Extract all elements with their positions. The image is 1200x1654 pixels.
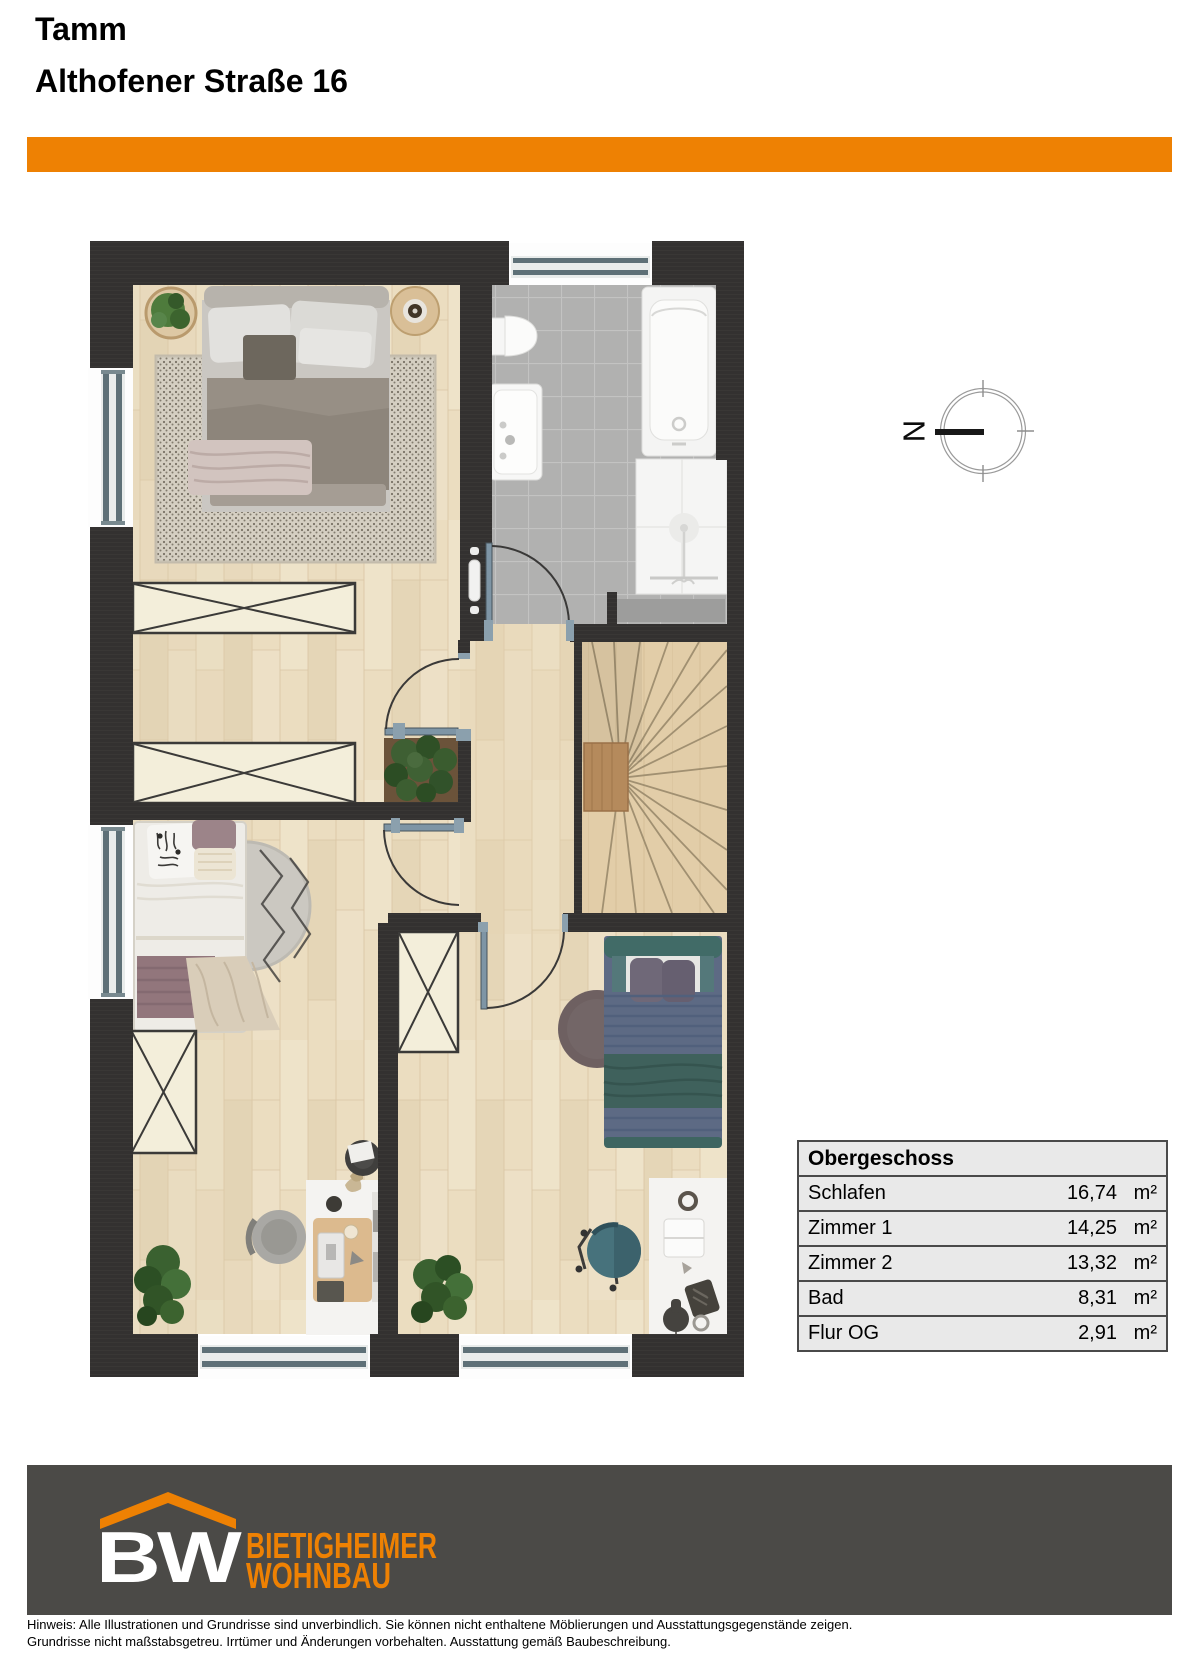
- svg-text:N: N: [897, 420, 932, 442]
- svg-text:BW: BW: [98, 1518, 242, 1595]
- svg-text:WOHNBAU: WOHNBAU: [246, 1555, 391, 1595]
